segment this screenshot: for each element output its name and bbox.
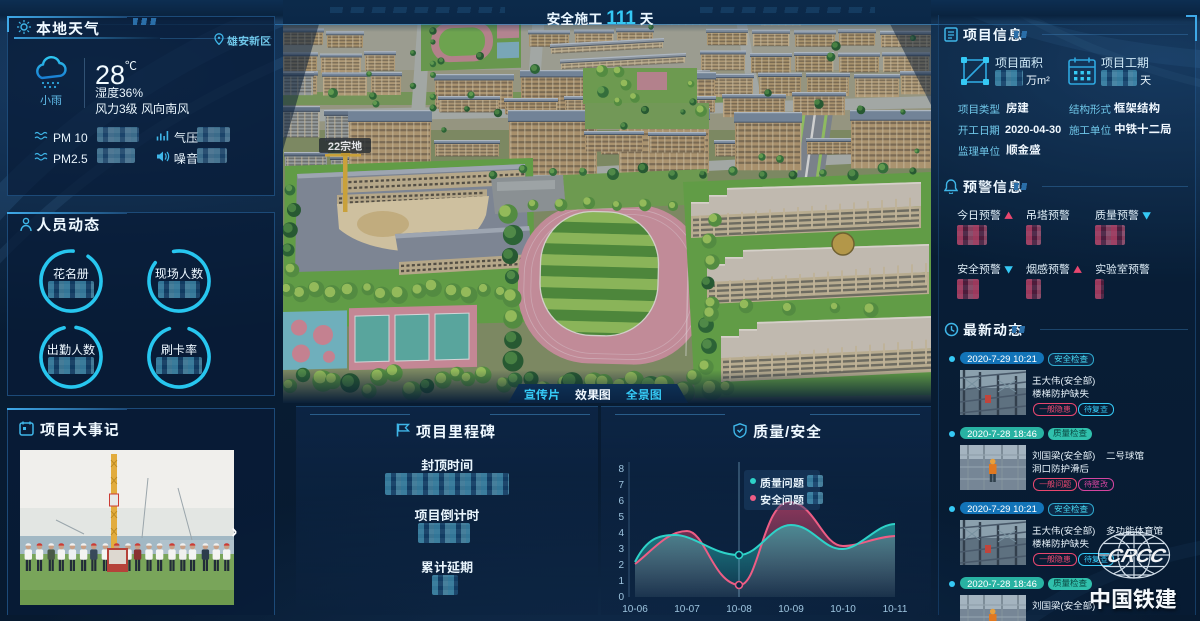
- svg-text:10-11: 10-11: [883, 604, 908, 615]
- svg-text:8: 8: [618, 464, 624, 475]
- svg-text:10-08: 10-08: [726, 604, 752, 615]
- svg-text:3: 3: [618, 544, 624, 555]
- svg-text:4: 4: [618, 528, 624, 539]
- svg-text:10-06: 10-06: [622, 604, 648, 615]
- svg-text:10-10: 10-10: [830, 604, 856, 615]
- svg-text:2: 2: [618, 560, 624, 571]
- svg-text:0: 0: [618, 592, 624, 603]
- svg-text:CRCC: CRCC: [1105, 545, 1170, 567]
- svg-text:10-09: 10-09: [778, 604, 804, 615]
- svg-text:5: 5: [618, 512, 624, 523]
- svg-text:10-07: 10-07: [674, 604, 700, 615]
- svg-text:1: 1: [618, 576, 624, 587]
- svg-text:7: 7: [618, 480, 624, 491]
- svg-text:6: 6: [618, 496, 624, 507]
